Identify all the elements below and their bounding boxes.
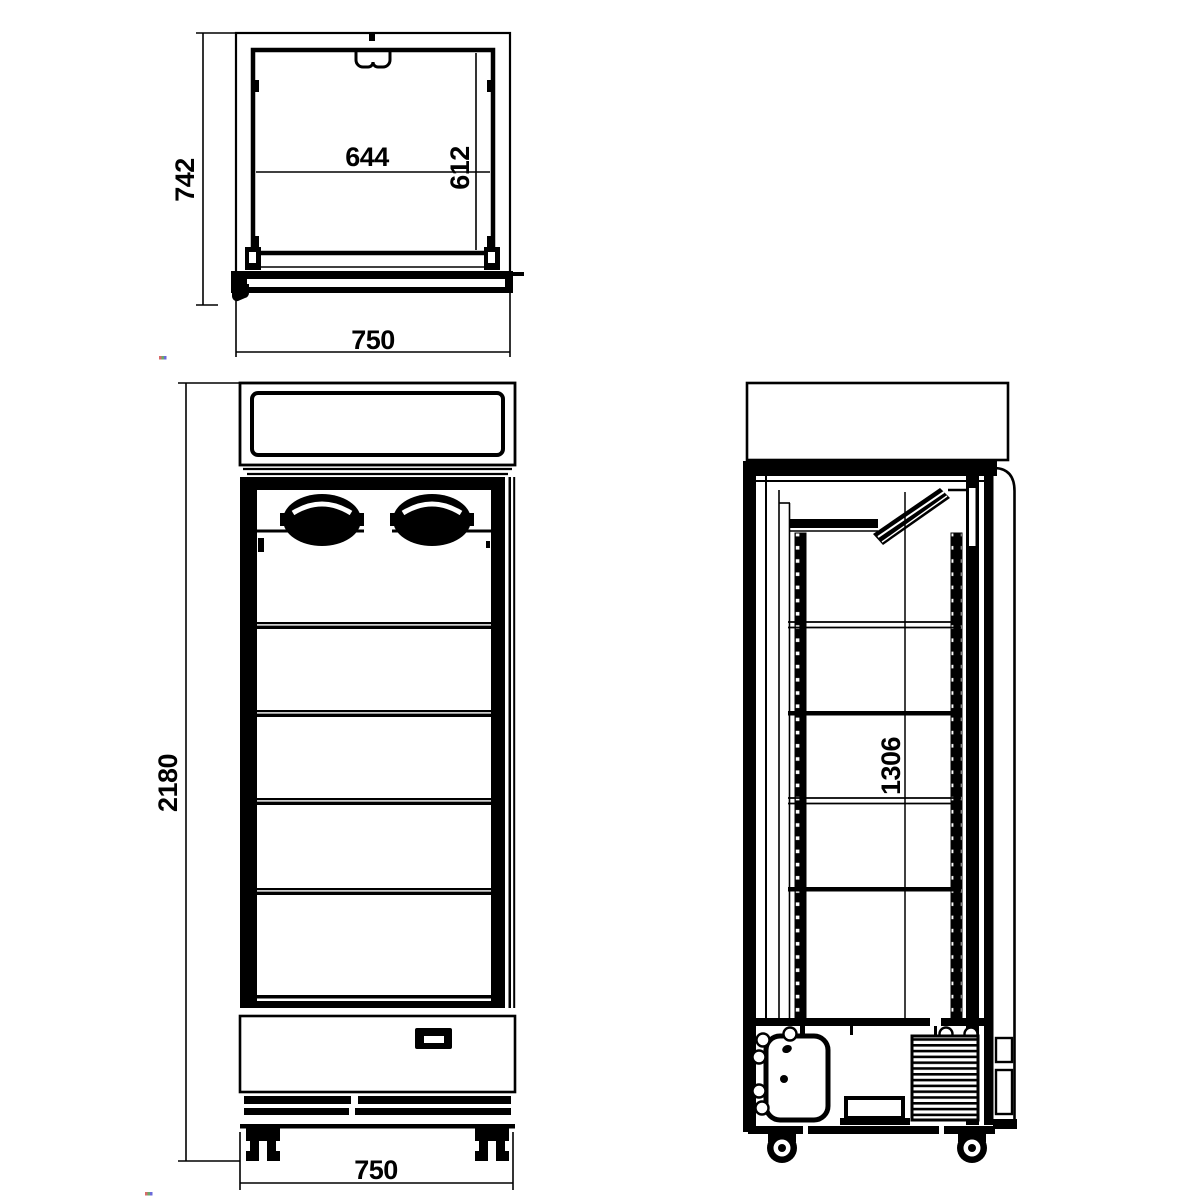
caster-wheel-front bbox=[957, 1133, 987, 1163]
front-view: 2180 bbox=[153, 383, 515, 1190]
shelves-side bbox=[788, 622, 961, 892]
hanger-stub bbox=[850, 1026, 853, 1035]
pipe-fitting bbox=[753, 1085, 766, 1098]
wall-nub bbox=[253, 80, 259, 92]
door-edge-gap bbox=[511, 477, 513, 1008]
condenser-coil bbox=[912, 1036, 978, 1120]
base-frame bbox=[748, 1126, 995, 1134]
louver-strip bbox=[244, 1096, 511, 1104]
dim-label-height: 2180 bbox=[153, 754, 183, 812]
handle-recess bbox=[969, 488, 976, 546]
top-view: 644 612 742 750 bbox=[170, 33, 524, 357]
scan-artifact-dot bbox=[159, 356, 167, 360]
compressor-terminal bbox=[780, 1075, 788, 1083]
door-edge-gap bbox=[505, 477, 509, 1008]
interior-corner-mark bbox=[258, 538, 264, 552]
door-hinge-block-right bbox=[484, 247, 500, 270]
dimension-height-2180: 2180 bbox=[153, 383, 240, 1161]
pipe-fitting bbox=[753, 1051, 766, 1064]
kick-panel bbox=[240, 1016, 515, 1092]
compressor bbox=[766, 1036, 828, 1120]
hinge-fitting bbox=[996, 1038, 1012, 1062]
dim-label-inner-depth: 612 bbox=[445, 146, 475, 190]
louver-strip bbox=[244, 1108, 511, 1115]
shelf-rail-rear bbox=[795, 533, 806, 1018]
pipe-fitting bbox=[757, 1034, 770, 1047]
door-edge-tick bbox=[510, 272, 524, 276]
dim-label-depth: 742 bbox=[170, 158, 200, 202]
wall-nub bbox=[253, 236, 259, 248]
machine-compartment bbox=[748, 1018, 1012, 1163]
freezer-orthographic-drawing: 644 612 742 750 bbox=[0, 0, 1200, 1200]
dimension-width-750-front: 750 bbox=[240, 1132, 513, 1190]
header-lightbox-side bbox=[747, 383, 1008, 460]
dimension-depth-742: 742 bbox=[170, 33, 236, 305]
leveling-foot-right bbox=[475, 1128, 509, 1161]
door-hinge-block-left bbox=[245, 247, 261, 270]
tray-base bbox=[840, 1118, 910, 1125]
pipe-fitting bbox=[784, 1028, 797, 1041]
interior-corner-mark bbox=[486, 541, 490, 548]
air-duct-bar bbox=[790, 519, 878, 528]
hinge-fitting bbox=[996, 1070, 1012, 1114]
dim-label-shelf-area-height: 1306 bbox=[876, 736, 906, 795]
cabinet-side-line bbox=[513, 477, 515, 1008]
compartment-ceiling bbox=[756, 1018, 930, 1026]
side-view: 1306 bbox=[743, 383, 1017, 1163]
pipe-fitting bbox=[756, 1102, 769, 1115]
header-sign-panel bbox=[252, 393, 503, 455]
top-center-tick bbox=[369, 33, 375, 41]
door-glass-band bbox=[984, 470, 994, 1125]
wall-nub bbox=[487, 236, 493, 248]
compartment-ceiling bbox=[941, 1018, 985, 1026]
door-bottom-edge-line bbox=[257, 999, 491, 1002]
door-glass-pane-plan bbox=[247, 279, 505, 287]
hinge-pin bbox=[232, 284, 249, 301]
brand-badge bbox=[415, 1028, 452, 1049]
dim-label-inner-width: 644 bbox=[345, 142, 389, 172]
dim-label-width-top: 750 bbox=[351, 325, 395, 355]
dim-label-width-front: 750 bbox=[354, 1155, 398, 1185]
dimension-width-750-top: 750 bbox=[236, 293, 510, 357]
base-rail bbox=[240, 1124, 515, 1129]
scan-artifact-dot bbox=[145, 1192, 153, 1196]
cabinet-top-wall bbox=[743, 461, 997, 476]
wall-nub bbox=[487, 80, 493, 92]
mounting-tray bbox=[846, 1098, 903, 1118]
cabinet-back-wall bbox=[743, 461, 756, 1132]
technical-drawing-page: 644 612 742 750 bbox=[0, 0, 1200, 1200]
caster-wheel-rear bbox=[767, 1133, 797, 1163]
leveling-foot-left bbox=[246, 1128, 280, 1161]
door-bottom-rail bbox=[993, 1119, 1017, 1129]
door-outer-profile bbox=[995, 468, 1015, 1126]
shelf-rail-front bbox=[951, 533, 962, 1018]
glass-door-interior bbox=[257, 490, 491, 995]
door-edge-line bbox=[509, 477, 512, 1008]
